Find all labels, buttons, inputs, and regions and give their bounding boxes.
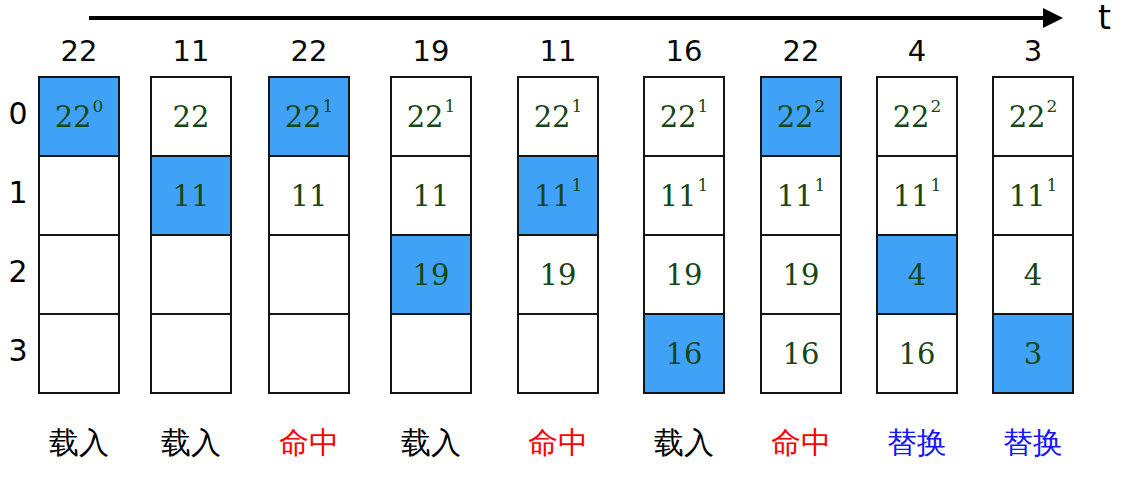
access-column: 322211143 [992, 30, 1074, 394]
frame-cell [268, 313, 350, 394]
frame-cell: 16 [760, 313, 842, 394]
access-count-superscript: 2 [815, 98, 826, 115]
page-number: 19 [666, 258, 703, 292]
frame-cell-highlighted: 222 [760, 76, 842, 157]
frame-cell-highlighted: 3 [992, 313, 1074, 394]
frame-cell: 222 [992, 76, 1074, 157]
frame-cell: 221 [643, 76, 725, 157]
page-number: 11 [413, 179, 450, 213]
frame-cell: 11 [390, 155, 472, 236]
action-label-hit: 命中 [250, 422, 368, 464]
frame-cell: 221 [390, 76, 472, 157]
page-number: 22 [893, 100, 930, 134]
page-reference-number: 19 [390, 30, 472, 76]
page-number: 22 [55, 100, 92, 134]
frame-cell-highlighted: 4 [876, 234, 958, 315]
page-number: 22 [534, 100, 571, 134]
page-number: 11 [173, 179, 210, 213]
page-number: 22 [407, 100, 444, 134]
page-number: 4 [1024, 258, 1042, 292]
frame-cell-highlighted: 19 [390, 234, 472, 315]
frame-cell: 19 [643, 234, 725, 315]
page-number: 16 [666, 337, 703, 371]
time-axis-arrowhead-icon [1043, 8, 1063, 28]
time-axis-line [89, 16, 1045, 20]
page-reference-number: 4 [876, 30, 958, 76]
action-label-hit: 命中 [742, 422, 860, 464]
access-count-superscript: 1 [445, 98, 456, 115]
frame-cell: 22 [150, 76, 232, 157]
frame-cell-highlighted: 16 [643, 313, 725, 394]
access-column: 1122111119 [517, 30, 599, 394]
frame-cell [150, 234, 232, 315]
frame-cell [268, 234, 350, 315]
frame-row-label: 0 [4, 74, 32, 153]
frame-cell-highlighted: 221 [268, 76, 350, 157]
page-reference-number: 16 [643, 30, 725, 76]
page-reference-number: 3 [992, 30, 1074, 76]
frame-cell [517, 313, 599, 394]
access-count-superscript: 1 [572, 98, 583, 115]
action-label-load: 载入 [20, 422, 138, 464]
access-count-superscript: 1 [572, 177, 583, 194]
frame-cell: 19 [517, 234, 599, 315]
page-number: 16 [783, 337, 820, 371]
access-count-superscript: 1 [323, 98, 334, 115]
access-count-superscript: 2 [1047, 98, 1058, 115]
frame-cell [390, 313, 472, 394]
page-number: 11 [777, 179, 814, 213]
page-number: 11 [1009, 179, 1046, 213]
access-column: 192211119 [390, 30, 472, 394]
frame-cell: 4 [992, 234, 1074, 315]
access-column: 222221111916 [760, 30, 842, 394]
access-count-superscript: 0 [93, 98, 104, 115]
frame-row-label: 2 [4, 232, 32, 311]
page-number: 16 [899, 337, 936, 371]
page-number: 19 [540, 258, 577, 292]
page-reference-number: 11 [517, 30, 599, 76]
page-reference-number: 11 [150, 30, 232, 76]
access-count-superscript: 1 [1047, 177, 1058, 194]
page-number: 22 [777, 100, 814, 134]
action-label-replace: 替换 [974, 422, 1092, 464]
page-reference-number: 22 [268, 30, 350, 76]
action-label-load: 载入 [625, 422, 743, 464]
page-number: 19 [413, 258, 450, 292]
frame-cell: 222 [876, 76, 958, 157]
access-count-superscript: 1 [698, 98, 709, 115]
page-number: 22 [1009, 100, 1046, 134]
page-number: 22 [285, 100, 322, 134]
access-count-superscript: 1 [931, 177, 942, 194]
frame-cell: 111 [876, 155, 958, 236]
frame-cell [38, 313, 120, 394]
page-number: 11 [660, 179, 697, 213]
frame-cell: 111 [992, 155, 1074, 236]
frame-cell-highlighted: 220 [38, 76, 120, 157]
frame-cell: 19 [760, 234, 842, 315]
access-column: 22220 [38, 30, 120, 394]
page-reference-number: 22 [38, 30, 120, 76]
page-reference-number: 22 [760, 30, 842, 76]
frame-row-label: 3 [4, 311, 32, 390]
access-count-superscript: 1 [815, 177, 826, 194]
frame-cell: 11 [268, 155, 350, 236]
access-column: 2222111 [268, 30, 350, 394]
frame-cell: 16 [876, 313, 958, 394]
frame-row-label: 1 [4, 153, 32, 232]
frame-cell: 111 [760, 155, 842, 236]
frame-cell [38, 234, 120, 315]
action-label-load: 载入 [372, 422, 490, 464]
frame-cell-highlighted: 11 [150, 155, 232, 236]
page-number: 3 [1024, 337, 1042, 371]
action-label-load: 载入 [132, 422, 250, 464]
frame-cell-highlighted: 111 [517, 155, 599, 236]
access-column: 112211 [150, 30, 232, 394]
page-number: 11 [893, 179, 930, 213]
page-number: 19 [783, 258, 820, 292]
page-number: 22 [660, 100, 697, 134]
frame-cell [38, 155, 120, 236]
access-count-superscript: 2 [931, 98, 942, 115]
frame-cell: 221 [517, 76, 599, 157]
frame-cell [150, 313, 232, 394]
access-column: 162211111916 [643, 30, 725, 394]
page-number: 22 [173, 100, 210, 134]
time-axis-label: t [1098, 0, 1111, 37]
page-replacement-diagram: t 0123 222201122112222111192211119112211… [0, 0, 1127, 486]
access-count-superscript: 1 [698, 177, 709, 194]
access-column: 4222111416 [876, 30, 958, 394]
frame-cell: 111 [643, 155, 725, 236]
action-label-replace: 替换 [858, 422, 976, 464]
page-number: 11 [534, 179, 571, 213]
action-label-hit: 命中 [499, 422, 617, 464]
page-number: 4 [908, 258, 926, 292]
page-number: 11 [291, 179, 328, 213]
